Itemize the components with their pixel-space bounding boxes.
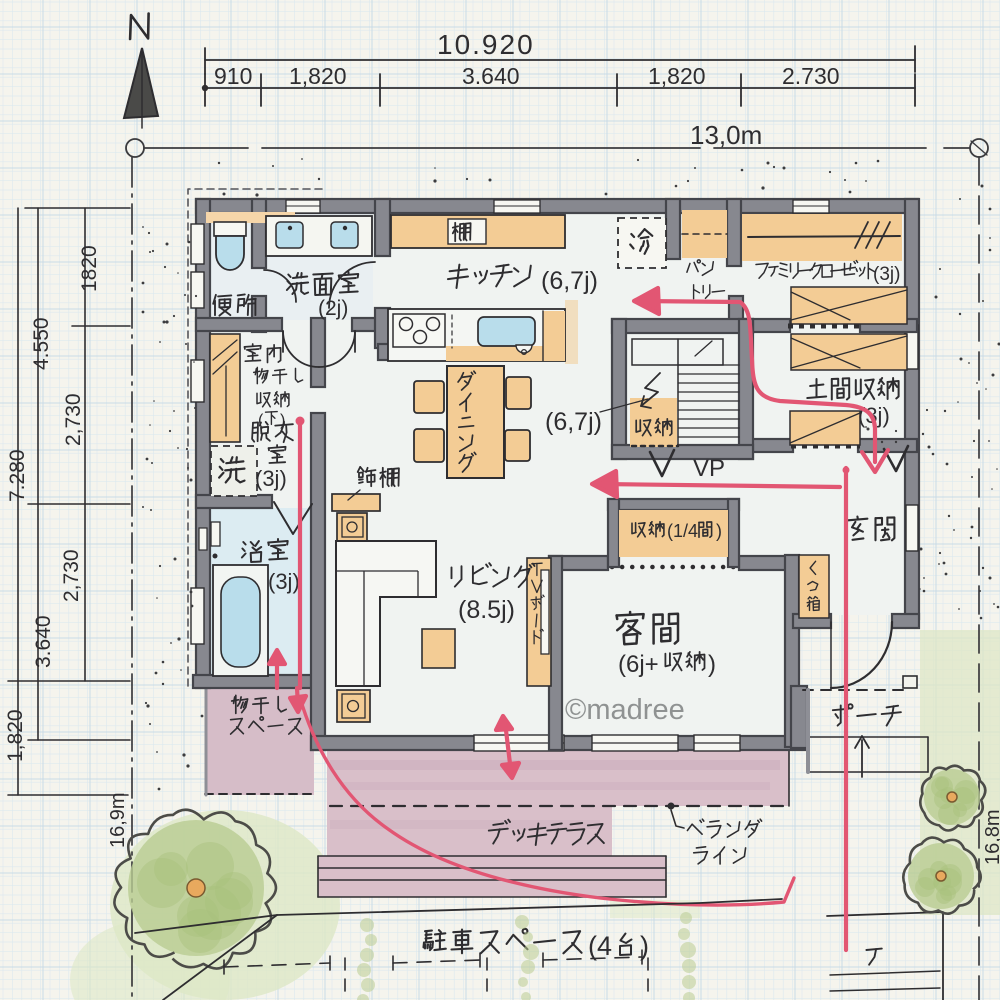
svg-text:3.640: 3.640 (462, 63, 520, 89)
svg-text:(8.5j): (8.5j) (458, 596, 515, 624)
svg-text:(4: (4 (588, 931, 612, 961)
svg-text:(6j+: (6j+ (618, 651, 659, 678)
svg-text:10.920: 10.920 (437, 29, 535, 60)
svg-text:16,9m: 16,9m (107, 792, 129, 848)
svg-text:(2j): (2j) (318, 297, 348, 320)
svg-text:1,820: 1,820 (648, 63, 706, 89)
svg-text:16,8m: 16,8m (982, 809, 1000, 865)
svg-text:7.280: 7.280 (6, 449, 29, 502)
svg-text:910: 910 (214, 63, 252, 89)
svg-text:): ) (716, 521, 722, 541)
svg-text:4.550: 4.550 (30, 317, 53, 370)
svg-text:VP: VP (693, 455, 725, 482)
svg-text:2,730: 2,730 (62, 393, 85, 446)
svg-text:©madree: ©madree (565, 694, 685, 726)
svg-text:(6,7j): (6,7j) (545, 408, 602, 436)
svg-text:(1/4: (1/4 (667, 521, 698, 541)
svg-text:1,820: 1,820 (4, 709, 27, 762)
svg-text:2.730: 2.730 (782, 63, 840, 89)
svg-text:3.640: 3.640 (32, 615, 55, 668)
svg-text:(3j): (3j) (873, 264, 900, 285)
svg-text:13,0m: 13,0m (690, 120, 762, 150)
svg-text:(3j): (3j) (268, 569, 300, 594)
svg-text:(6,7j): (6,7j) (541, 267, 598, 295)
svg-text:): ) (708, 651, 716, 678)
svg-text:(3j): (3j) (255, 466, 287, 491)
svg-text:1,820: 1,820 (289, 63, 347, 89)
svg-text:2,730: 2,730 (60, 549, 83, 602)
svg-text:1820: 1820 (78, 245, 101, 292)
